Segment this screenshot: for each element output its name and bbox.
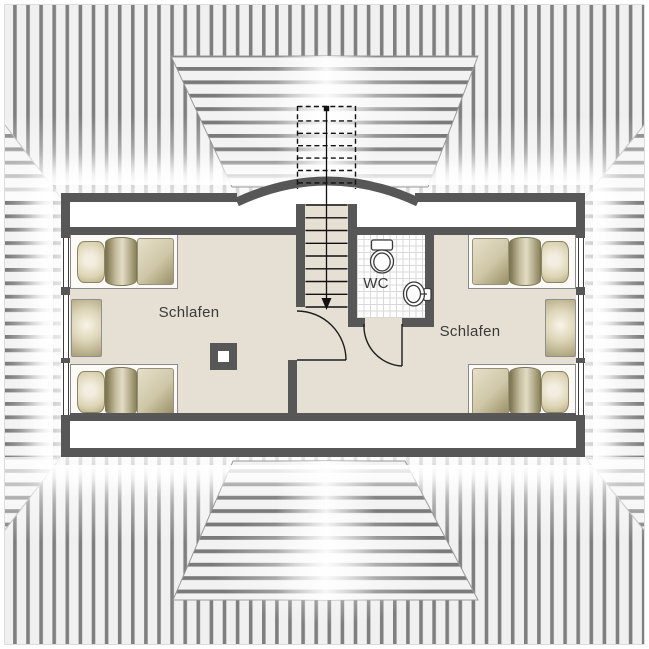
window-glazing bbox=[63, 363, 69, 415]
bed-blanket-fold bbox=[105, 237, 137, 286]
bed bbox=[468, 364, 576, 419]
floorplan-page: Schlafen Schlafen WC bbox=[0, 0, 649, 649]
bed bbox=[468, 234, 576, 289]
bed-duvet bbox=[137, 238, 174, 285]
bed-blanket-fold bbox=[509, 237, 541, 286]
attic-floor-plan: Schlafen Schlafen WC bbox=[61, 193, 585, 457]
stair-wall-left bbox=[296, 186, 305, 307]
stair-wall-right bbox=[348, 186, 357, 327]
bed bbox=[70, 364, 178, 419]
wc-wall-right bbox=[425, 227, 434, 327]
bed-pillow bbox=[77, 371, 105, 413]
outer-wall-bottom bbox=[61, 448, 585, 457]
window-glazing bbox=[578, 295, 584, 358]
room-label-bedroom-right: Schlafen bbox=[430, 323, 510, 340]
window-glazing bbox=[63, 295, 69, 358]
window bbox=[576, 295, 585, 358]
knee-wall-bottom bbox=[70, 413, 576, 421]
window bbox=[576, 363, 585, 415]
outer-wall-top-left bbox=[61, 193, 237, 202]
bed-blanket-fold bbox=[509, 367, 541, 416]
bedroom-partition-wall bbox=[288, 360, 297, 421]
dresser bbox=[545, 299, 576, 357]
outer-wall-top-right bbox=[415, 193, 585, 202]
window-glazing bbox=[578, 363, 584, 415]
window-glazing bbox=[578, 238, 584, 287]
window bbox=[61, 363, 70, 415]
window bbox=[61, 295, 70, 358]
wc-wall-bottom-left bbox=[348, 318, 365, 327]
eaves-strip-bottom bbox=[70, 421, 576, 449]
room-label-bedroom-left: Schlafen bbox=[149, 304, 229, 321]
knee-wall-top-left bbox=[70, 227, 296, 235]
bed-duvet bbox=[472, 238, 509, 285]
chimney bbox=[210, 343, 237, 370]
window-glazing bbox=[63, 238, 69, 287]
bed-pillow bbox=[77, 241, 105, 283]
bed-blanket-fold bbox=[105, 367, 137, 416]
window bbox=[576, 238, 585, 287]
window bbox=[61, 238, 70, 287]
knee-wall-top-right bbox=[357, 227, 576, 235]
bed-pillow bbox=[541, 371, 569, 413]
chimney-flue bbox=[218, 351, 229, 362]
bed bbox=[70, 234, 178, 289]
bed-duvet bbox=[137, 368, 174, 415]
room-label-wc: WC bbox=[356, 275, 396, 292]
stair-floor bbox=[305, 185, 348, 310]
dresser bbox=[71, 299, 102, 357]
bed-duvet bbox=[472, 368, 509, 415]
bed-pillow bbox=[541, 241, 569, 283]
